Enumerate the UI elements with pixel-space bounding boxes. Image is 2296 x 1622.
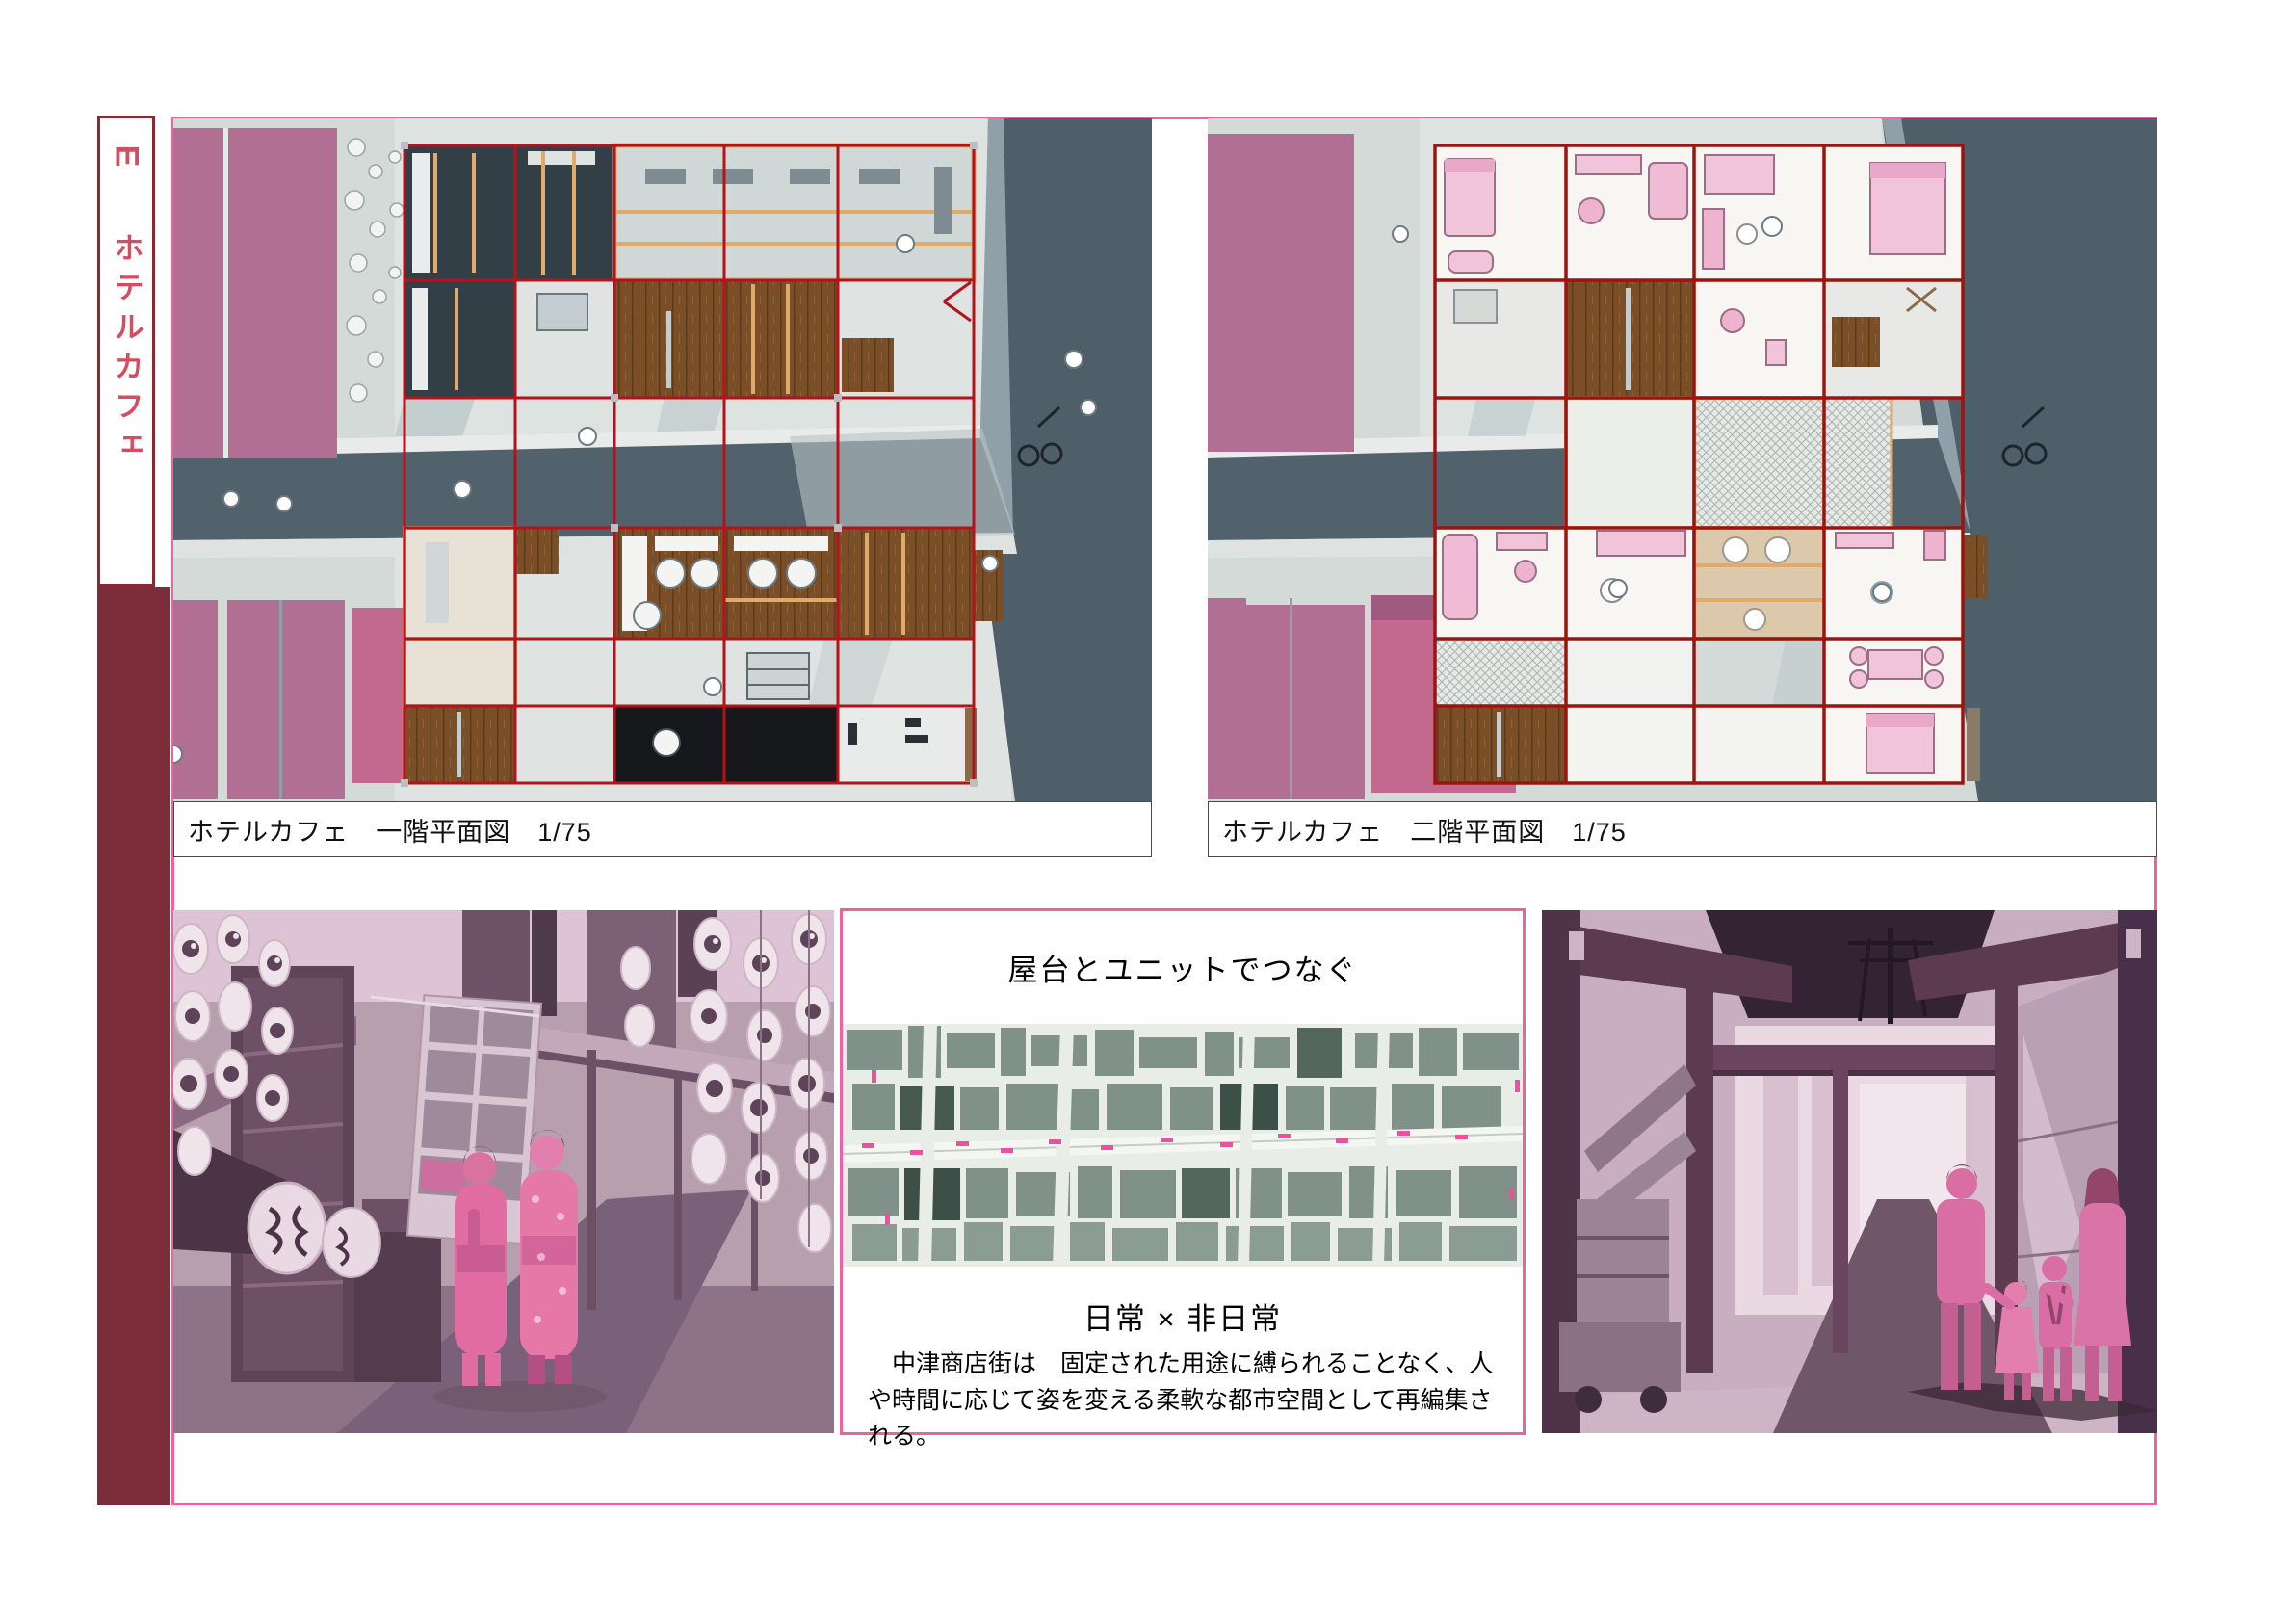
caption-text: ホテルカフェ 一階平面図 1/75 — [188, 811, 592, 849]
district-map-image — [843, 1024, 1523, 1267]
section-title-vertical: ホテルカフェ — [112, 232, 142, 469]
presentation-board: E ホテルカフェ — [0, 0, 2296, 1622]
concept-title: 屋台とユニットでつなぐ — [843, 946, 1523, 989]
maroon-side-bar — [97, 587, 170, 1505]
caption-text: ホテルカフェ 二階平面図 1/75 — [1222, 811, 1627, 849]
concept-panel: 屋台とユニットでつなぐ — [840, 908, 1526, 1435]
concept-body-text: 中津商店街は 固定された用途に縛られることなく、人や時間に応じて姿を変える柔軟な… — [868, 1347, 1500, 1455]
first-floor-plan-image — [173, 118, 1152, 801]
concept-subtitle: 日常 × 非日常 — [843, 1295, 1523, 1338]
second-floor-plan-image — [1208, 118, 2157, 801]
section-letter: E — [110, 145, 143, 168]
festival-street-render — [173, 910, 834, 1433]
arcade-corridor-render — [1542, 910, 2157, 1433]
first-floor-plan-caption: ホテルカフェ 一階平面図 1/75 — [173, 801, 1152, 857]
second-floor-plan-caption: ホテルカフェ 二階平面図 1/75 — [1208, 801, 2157, 857]
section-tab: E ホテルカフェ — [97, 116, 155, 587]
